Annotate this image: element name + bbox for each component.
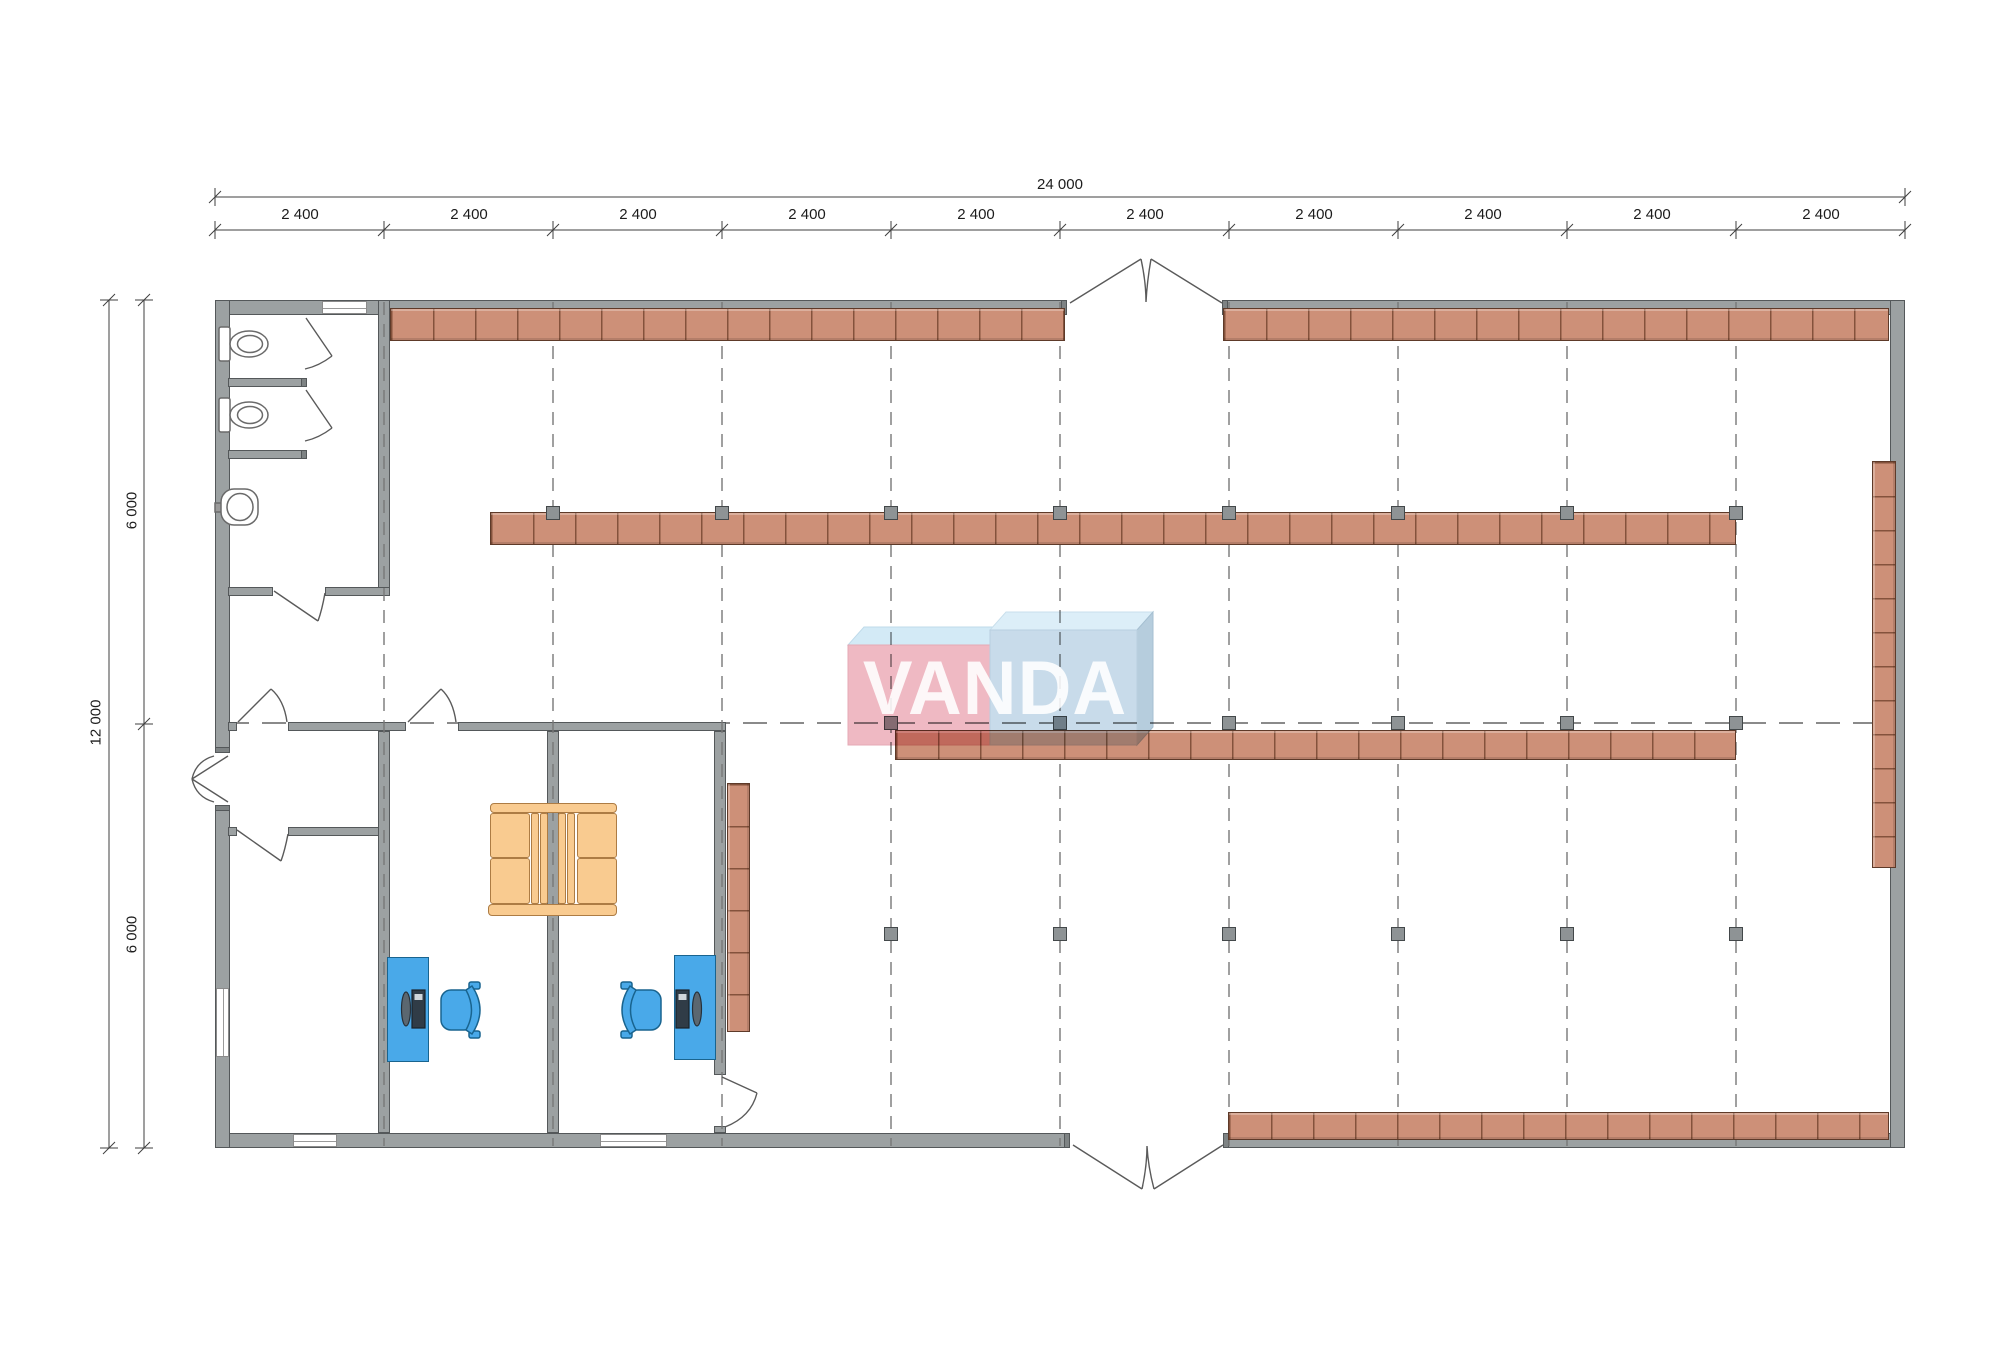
dim-bay-10: 2 400	[1781, 206, 1861, 223]
dim-bay-6: 2 400	[1105, 206, 1185, 223]
dim-bay-3: 2 400	[598, 206, 678, 223]
dim-bay-4: 2 400	[767, 206, 847, 223]
dim-bay-1: 2 400	[260, 206, 340, 223]
dim-total-width: 24 000	[1010, 176, 1110, 193]
dimension-lines	[0, 0, 2000, 1358]
dim-half-height-1: 6 000	[124, 461, 141, 561]
dim-bay-9: 2 400	[1612, 206, 1692, 223]
dim-bay-7: 2 400	[1274, 206, 1354, 223]
dim-bay-8: 2 400	[1443, 206, 1523, 223]
dim-half-height-2: 6 000	[124, 885, 141, 985]
dim-bay-2: 2 400	[429, 206, 509, 223]
dim-bay-5: 2 400	[936, 206, 1016, 223]
floor-plan: VANDA	[0, 0, 2000, 1358]
dim-total-height: 12 000	[88, 673, 105, 773]
